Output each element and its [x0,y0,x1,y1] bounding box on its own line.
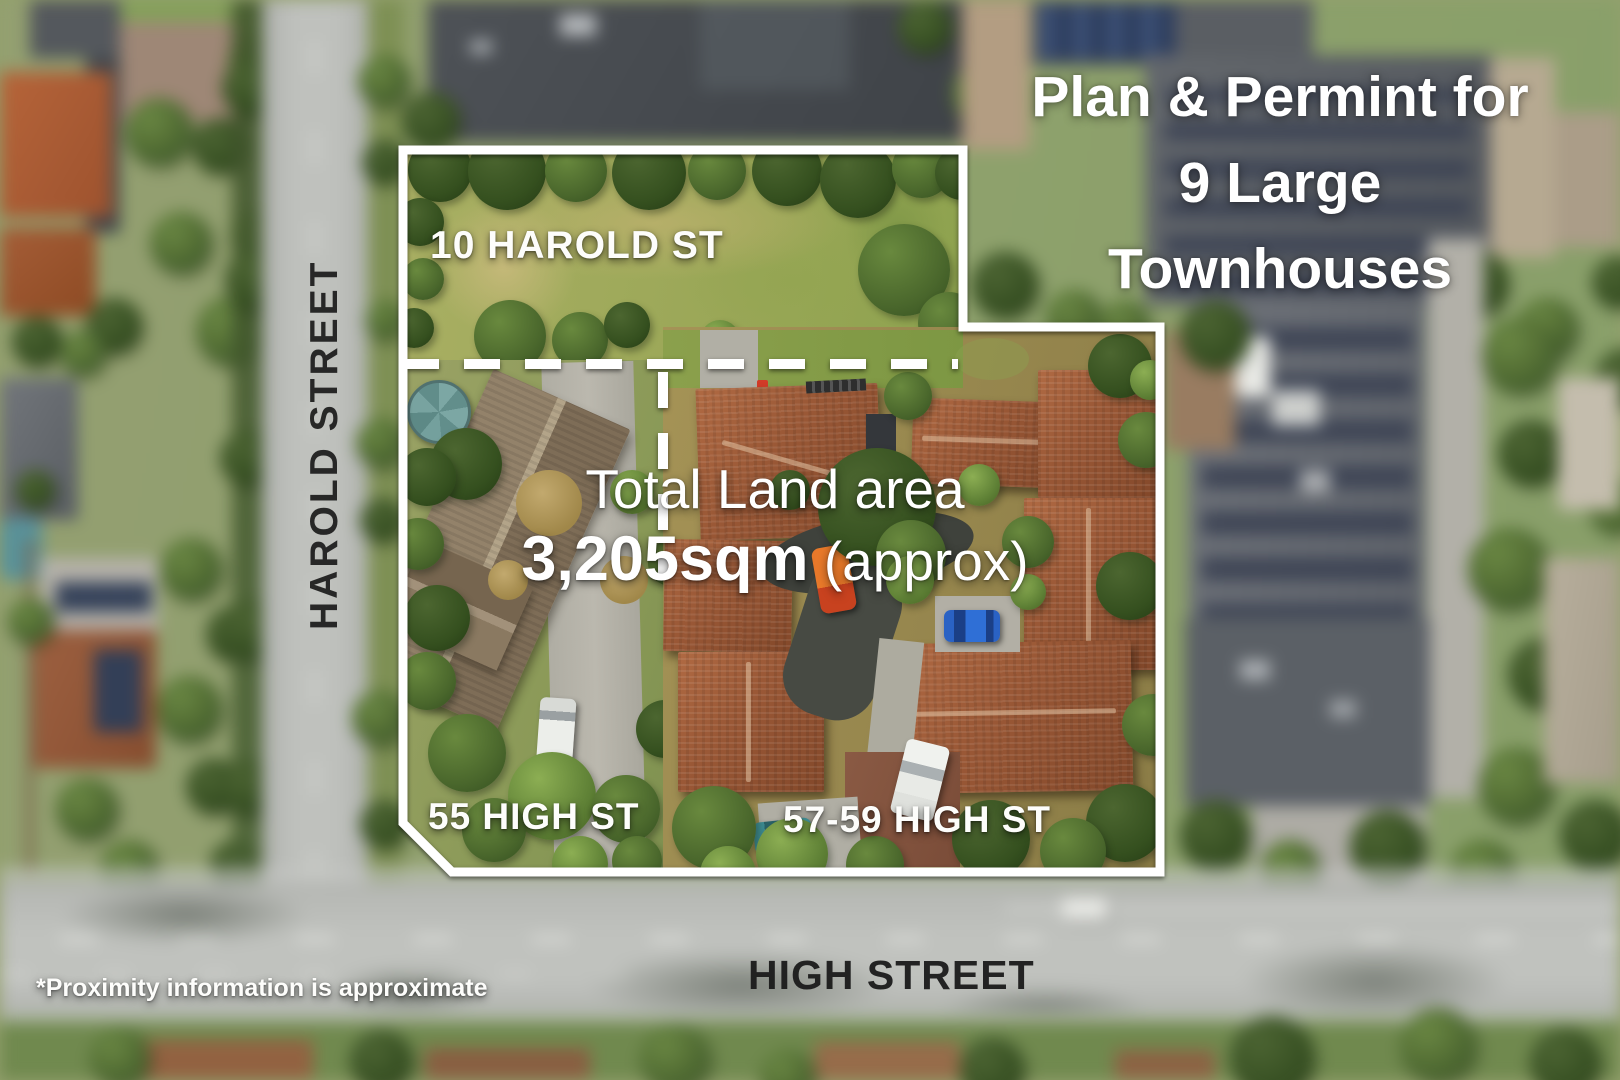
headline-line-2: 9 Large [990,140,1570,226]
land-area-qualifier: (approx) [809,530,1029,592]
parcel-label-55-high: 55 HIGH ST [428,796,640,838]
street-label-harold: HAROLD STREET [303,310,351,630]
land-area-value-line: 3,205sqm (approx) [445,526,1105,594]
aerial-photo: Plan & Permint for 9 Large Townhouses 10… [0,0,1620,1080]
headline: Plan & Permint for 9 Large Townhouses [990,54,1570,312]
background-building [428,0,963,142]
headline-line-3: Townhouses [990,226,1570,312]
blue-car [944,610,1000,642]
land-area-callout: Total Land area 3,205sqm (approx) [445,458,1105,594]
street-label-high: HIGH STREET [748,952,1035,999]
land-area-value: 3,205sqm [521,524,808,594]
disclaimer: *Proximity information is approximate [36,974,488,1003]
parcel-label-57-59-high: 57-59 HIGH ST [783,799,1051,841]
headline-line-1: Plan & Permint for [990,54,1570,140]
land-area-title: Total Land area [445,458,1105,520]
parcel-label-10-harold: 10 HAROLD ST [430,224,724,268]
